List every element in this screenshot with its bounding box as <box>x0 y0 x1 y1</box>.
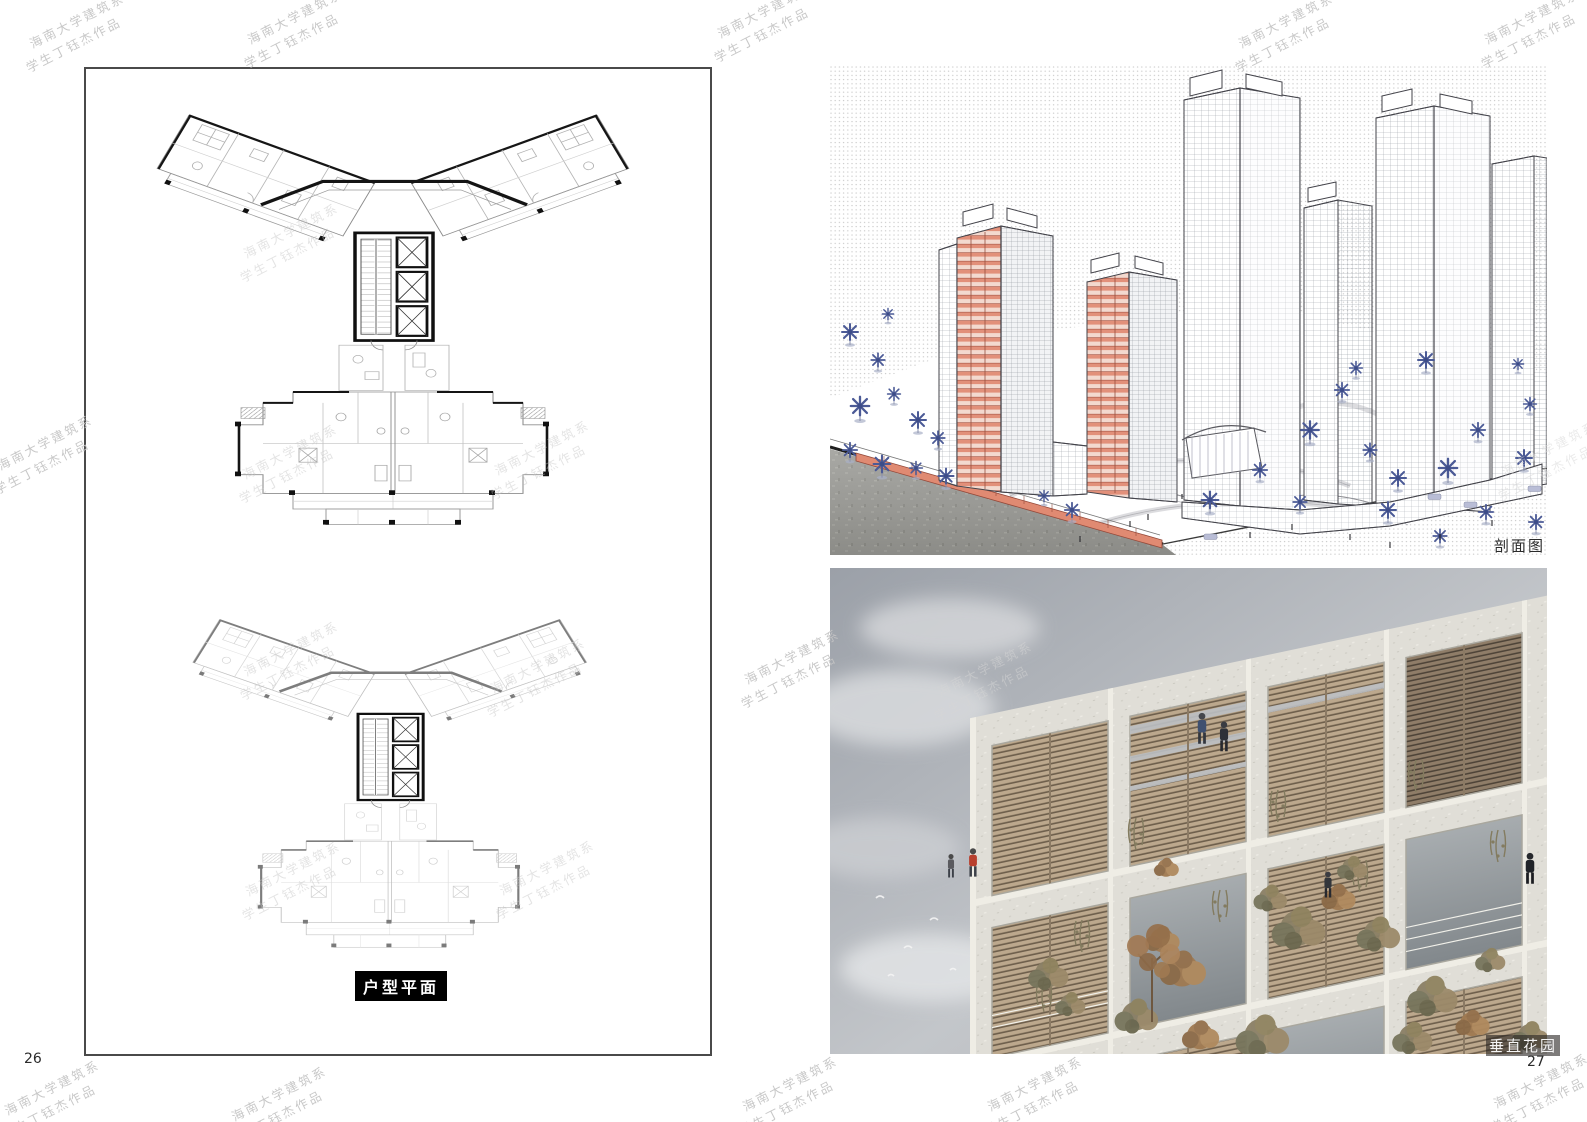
floor-plan-bottom-core <box>358 714 423 808</box>
floor-plans-drawing <box>86 69 710 1054</box>
section-axonometric-figure <box>830 66 1547 555</box>
plan-frame <box>84 67 712 1056</box>
watermark: 海南大学建筑系学生丁钰杰作品 <box>244 0 356 68</box>
garden-caption: 垂直花园 <box>1486 1035 1560 1056</box>
axon-caption: 剖面图 <box>1494 535 1545 556</box>
floor-plan-top <box>151 115 635 524</box>
page-number-left: 26 <box>24 1051 42 1067</box>
watermark: 海南大学建筑系学生丁钰杰作品 <box>228 1061 340 1122</box>
watermark: 海南大学建筑系学生丁钰杰作品 <box>1481 0 1587 68</box>
vertical-garden-figure <box>830 568 1547 1054</box>
watermark: 海南大学建筑系学生丁钰杰作品 <box>739 1051 851 1122</box>
watermark: 海南大学建筑系学生丁钰杰作品 <box>984 1051 1096 1122</box>
watermark: 海南大学建筑系学生丁钰杰作品 <box>26 0 138 72</box>
page-number-right: 27 <box>1527 1054 1545 1070</box>
watermark: 海南大学建筑系学生丁钰杰作品 <box>1235 0 1347 72</box>
watermark: 海南大学建筑系学生丁钰杰作品 <box>1 1055 113 1122</box>
plan-caption: 户型平面 <box>355 971 447 1001</box>
watermark: 海南大学建筑系学生丁钰杰作品 <box>714 0 826 62</box>
portfolio-spread-page: 户型平面 <box>0 0 1587 1122</box>
